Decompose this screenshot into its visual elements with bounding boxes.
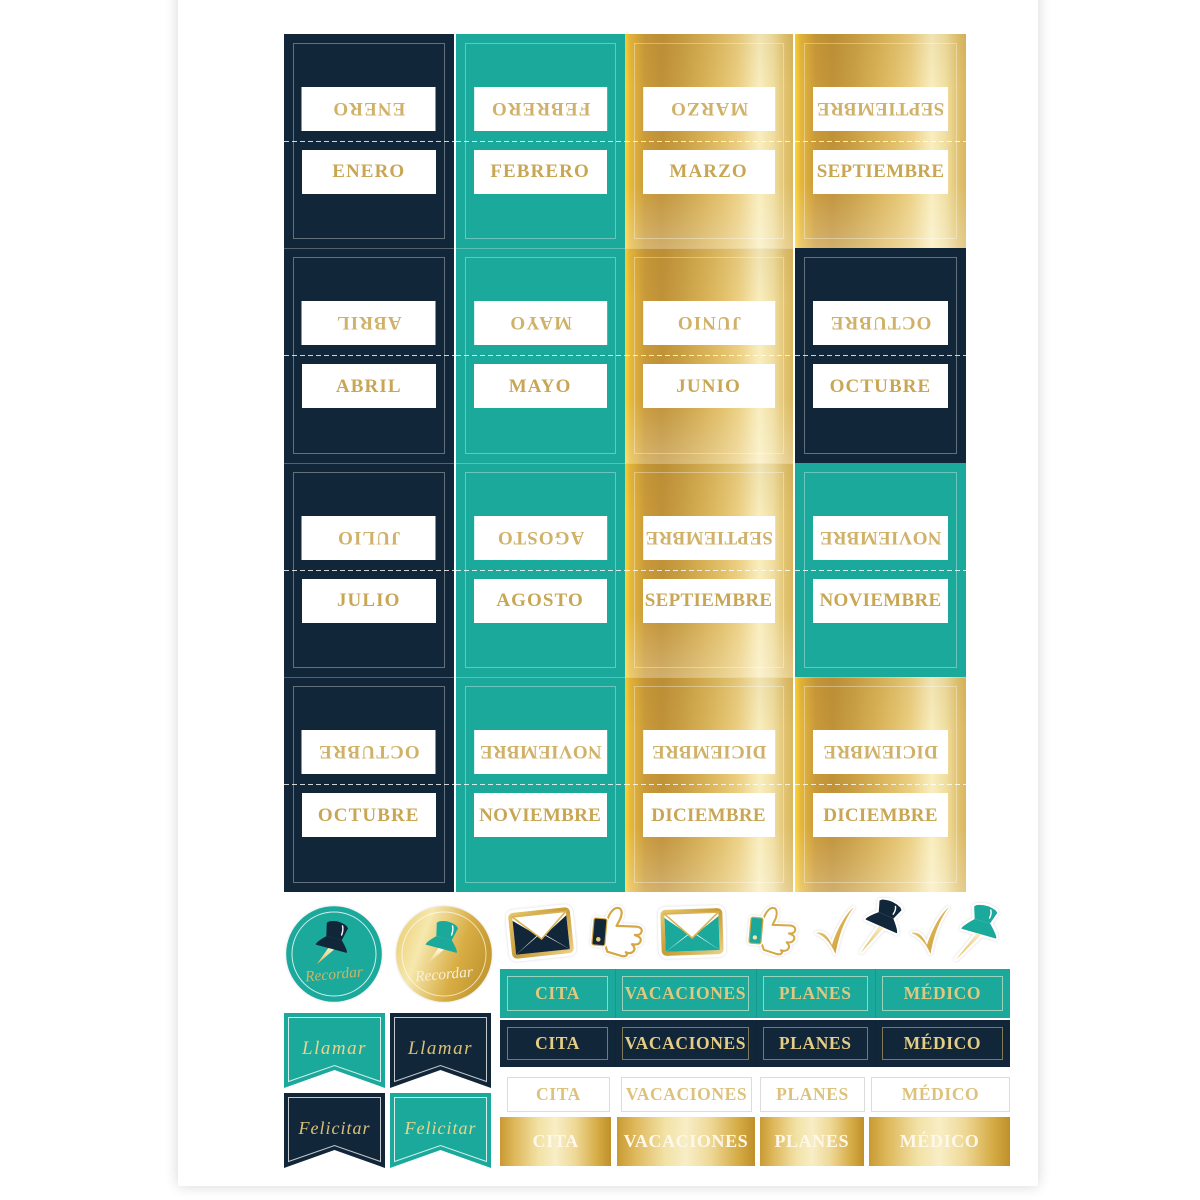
svg-text:Llamar: Llamar [407,1038,473,1059]
svg-text:Felicitar: Felicitar [404,1118,477,1138]
svg-text:Felicitar: Felicitar [298,1118,371,1138]
svg-text:Llamar: Llamar [301,1038,367,1059]
